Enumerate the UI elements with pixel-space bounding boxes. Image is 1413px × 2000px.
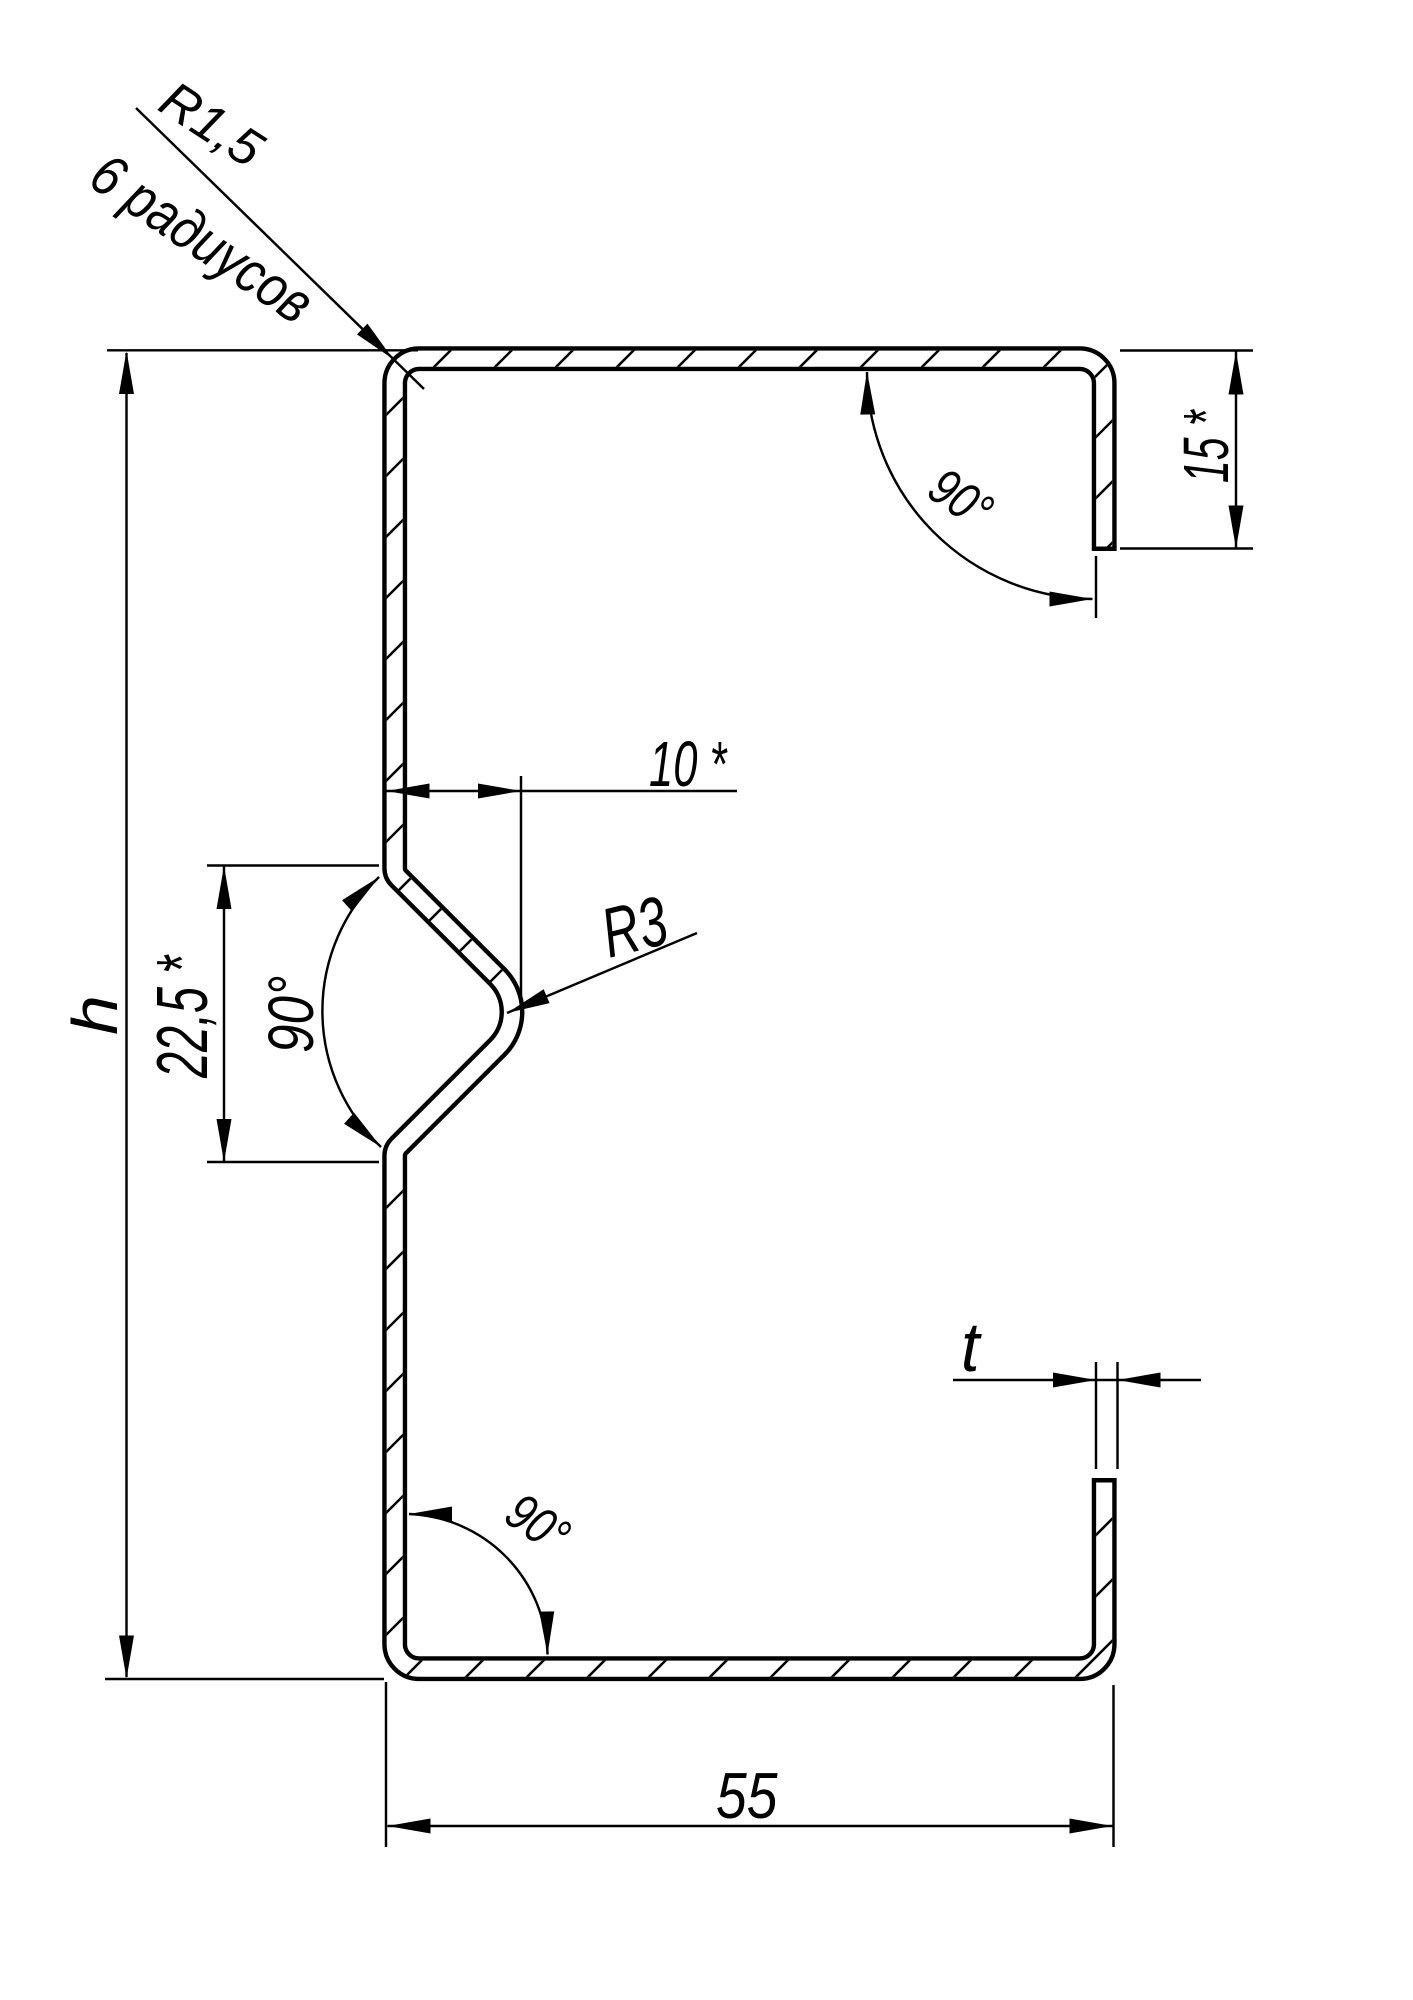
svg-text:15 *: 15 * xyxy=(1171,409,1242,483)
svg-text:90°: 90° xyxy=(496,1481,581,1565)
svg-text:6 радиусов: 6 радиусов xyxy=(79,141,325,336)
svg-text:55: 55 xyxy=(716,1759,778,1832)
svg-text:10 *: 10 * xyxy=(649,728,728,801)
svg-text:R3: R3 xyxy=(594,881,675,972)
svg-text:h: h xyxy=(60,995,132,1035)
svg-text:R1,5: R1,5 xyxy=(149,70,274,179)
svg-text:t: t xyxy=(961,1308,982,1386)
svg-text:90°: 90° xyxy=(919,456,1004,540)
svg-text:90°: 90° xyxy=(257,976,328,1053)
svg-text:22,5 *: 22,5 * xyxy=(142,954,223,1079)
